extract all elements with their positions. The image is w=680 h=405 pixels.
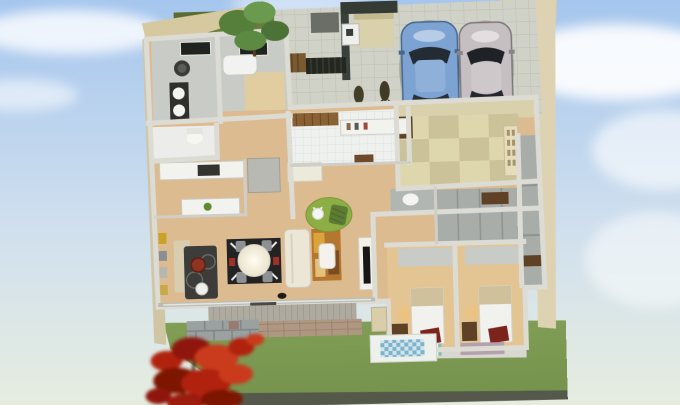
- hallway-rug: [305, 197, 352, 232]
- armchair-rug: [311, 228, 341, 281]
- bathtub: [223, 54, 258, 75]
- white-cat: [312, 207, 323, 220]
- wall-tv: [363, 247, 371, 284]
- bedroom-2: [457, 244, 526, 356]
- house-3d-render: [0, 0, 680, 405]
- metal-gate: [306, 57, 346, 74]
- window: [180, 42, 210, 56]
- stove-rug: [184, 246, 218, 300]
- red-floor-cushion-2: [488, 326, 509, 344]
- bedroom1-closet: [398, 247, 452, 266]
- bathroom-wood: [244, 72, 285, 111]
- front-door: [292, 112, 338, 126]
- bed-2: [479, 286, 512, 344]
- right-closet-shelf: [522, 255, 542, 267]
- property: [135, 0, 568, 405]
- sofa: [284, 229, 311, 288]
- cooktop: [198, 164, 220, 176]
- desk-2: [462, 322, 477, 341]
- refrigerator: [247, 158, 280, 193]
- garden-bench: [371, 307, 387, 331]
- tatami-room: [396, 99, 536, 187]
- floorplan-viewport: [0, 0, 680, 405]
- white-kettle: [196, 283, 208, 295]
- bedroom2-closet: [465, 246, 519, 265]
- outdoor-sink: [342, 24, 360, 45]
- round-dining-table: [238, 244, 271, 277]
- driveway-dark-patch: [311, 12, 340, 33]
- closet-shelf-box: [481, 192, 508, 205]
- dining-set: [227, 238, 282, 284]
- brick-steps: [252, 319, 362, 338]
- beanbag: [328, 204, 348, 226]
- white-armchair: [319, 243, 336, 268]
- red-pot: [191, 258, 205, 272]
